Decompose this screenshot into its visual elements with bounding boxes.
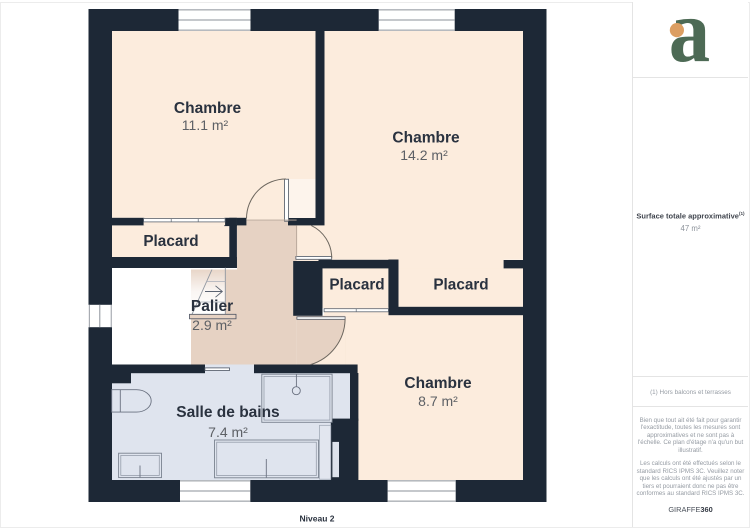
svg-text:Chambre: Chambre: [392, 130, 460, 147]
svg-text:8.7 m²: 8.7 m²: [418, 393, 458, 409]
svg-text:Placard: Placard: [329, 277, 384, 294]
svg-text:a: a: [669, 2, 710, 78]
svg-text:11.1 m²: 11.1 m²: [182, 117, 229, 133]
svg-text:7.4 m²: 7.4 m²: [208, 424, 248, 440]
svg-text:2.9 m²: 2.9 m²: [192, 317, 232, 333]
svg-text:Placard: Placard: [143, 233, 198, 250]
svg-text:14.2 m²: 14.2 m²: [400, 147, 448, 163]
svg-text:Chambre: Chambre: [404, 375, 472, 392]
svg-text:Niveau 2: Niveau 2: [300, 514, 335, 524]
svg-text:Chambre: Chambre: [174, 100, 242, 117]
svg-text:Salle de bains: Salle de bains: [176, 404, 279, 421]
svg-text:Placard: Placard: [433, 277, 488, 294]
svg-text:Palier: Palier: [191, 298, 233, 315]
